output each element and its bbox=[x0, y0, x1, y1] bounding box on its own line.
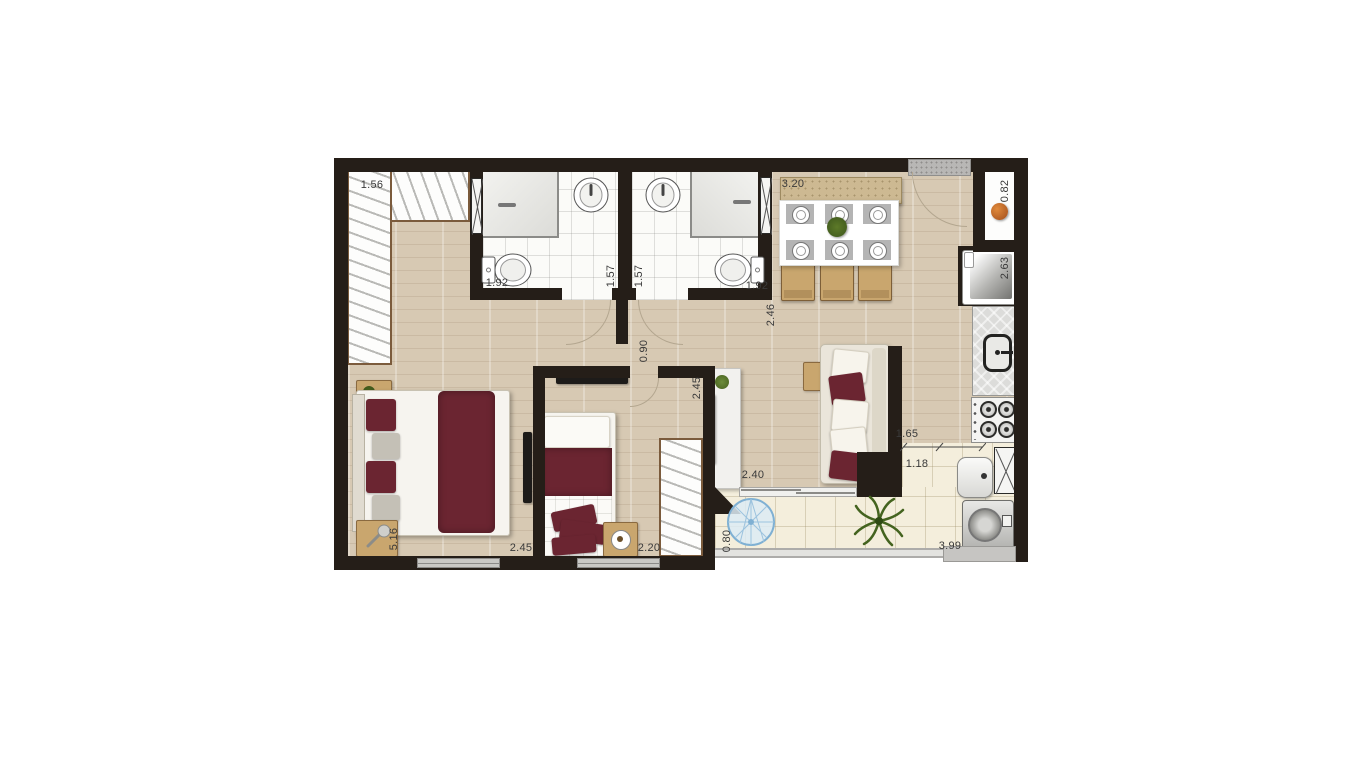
pillow-gray bbox=[372, 495, 400, 521]
pillow-single-bed bbox=[544, 416, 610, 448]
shower-stall-bath2 bbox=[690, 172, 758, 238]
dim-corridor-width: 0.90 bbox=[638, 340, 650, 363]
dim-balcony-length: 3.99 bbox=[939, 540, 962, 552]
table-centerpiece-plant-icon bbox=[827, 217, 847, 237]
dim-service-width: 1.18 bbox=[906, 458, 929, 470]
round-table-icon bbox=[726, 497, 776, 547]
master-bed-headboard bbox=[352, 394, 365, 532]
plate-icon bbox=[831, 242, 849, 260]
wall-niche-bottom bbox=[973, 240, 1028, 252]
water-heater bbox=[957, 457, 993, 498]
plate-icon bbox=[792, 242, 810, 260]
dining-chair bbox=[820, 263, 854, 301]
dim-niche-width: 0.82 bbox=[999, 180, 1011, 203]
pillow-gray bbox=[372, 433, 400, 459]
dim-living-width: 2.45 bbox=[691, 377, 703, 400]
wall-between-baths bbox=[618, 166, 632, 300]
niche-bowl-decor-icon bbox=[991, 203, 1008, 220]
shower-head-bath1-icon bbox=[498, 203, 516, 207]
wall-living-corner bbox=[857, 452, 902, 497]
wall-corridor-stub bbox=[616, 298, 628, 344]
faucet-icon bbox=[1001, 351, 1013, 354]
dim-bath1-length: 1.92 bbox=[486, 277, 509, 289]
closet-hanger-rail-left bbox=[347, 166, 392, 365]
tv-master-icon bbox=[523, 432, 532, 503]
duct-shaft bbox=[994, 447, 1016, 494]
sink-drain-dot bbox=[995, 350, 1000, 355]
dim-closet-width: 1.56 bbox=[361, 179, 384, 191]
wardrobe-bedroom2 bbox=[659, 438, 703, 557]
window-bedroom2 bbox=[577, 558, 660, 568]
dim-living-opening: 2.40 bbox=[742, 469, 765, 481]
wall-bedroom2-right bbox=[703, 366, 715, 557]
wall-left bbox=[334, 158, 348, 570]
duct-shaft-bath1 bbox=[471, 178, 482, 234]
window-master bbox=[417, 558, 500, 568]
dim-bath1-width: 1.57 bbox=[605, 265, 617, 288]
plate-icon bbox=[869, 206, 887, 224]
duct-shaft-bath2 bbox=[760, 177, 771, 234]
dim-master-length: 5.16 bbox=[388, 528, 400, 551]
washing-machine-panel bbox=[1002, 515, 1012, 527]
wall-bedroom2-top-a bbox=[533, 366, 630, 378]
stove-burner-icon bbox=[980, 401, 997, 418]
pillow-maroon bbox=[366, 461, 396, 493]
stove-burner-icon bbox=[980, 421, 997, 438]
stove-knobs bbox=[972, 400, 978, 440]
plate-icon bbox=[792, 206, 810, 224]
dim-bedroom2-width: 2.20 bbox=[638, 542, 661, 554]
dining-chair bbox=[858, 263, 892, 301]
dim-master-width: 2.45 bbox=[510, 542, 533, 554]
wall-niche-left bbox=[973, 158, 985, 252]
sliding-door-panel bbox=[796, 492, 855, 494]
dining-chair bbox=[781, 263, 815, 301]
shower-head-bath2-icon bbox=[733, 200, 751, 204]
sink-bath2-icon bbox=[643, 176, 683, 216]
dim-bath2-length: 1.92 bbox=[746, 280, 769, 292]
dim-dining-width: 3.20 bbox=[782, 178, 805, 190]
shower-stall-bath1 bbox=[483, 172, 559, 238]
lamp-center-dot bbox=[617, 536, 623, 542]
palm-plant-icon bbox=[850, 492, 908, 550]
rack-plant-icon bbox=[715, 375, 729, 389]
water-heater-valve-dot bbox=[981, 473, 987, 479]
refrigerator-handle bbox=[964, 252, 974, 268]
cushion-pile bbox=[551, 534, 596, 556]
dim-bath2-width: 1.57 bbox=[633, 265, 645, 288]
dimension-line-kitchen-passage bbox=[900, 441, 986, 453]
pillow-maroon bbox=[366, 399, 396, 431]
washing-machine-drum bbox=[968, 508, 1002, 542]
dim-hall-depth: 2.46 bbox=[765, 304, 777, 327]
dim-kitchen-passage: 1.65 bbox=[896, 428, 919, 440]
stove-burner-icon bbox=[998, 401, 1015, 418]
dim-balcony-depth: 0.80 bbox=[721, 530, 733, 553]
floor-plan-canvas: 1.56 1.92 1.57 1.57 1.92 3.20 0.82 2.63 … bbox=[0, 0, 1366, 768]
dim-kitchen-length: 2.63 bbox=[999, 257, 1011, 280]
master-bed-runner bbox=[438, 391, 495, 533]
stove-burner-icon bbox=[998, 421, 1015, 438]
sink-bath1-icon bbox=[571, 176, 611, 216]
wall-right bbox=[1014, 158, 1028, 562]
plate-icon bbox=[869, 242, 887, 260]
sliding-door-panel bbox=[741, 489, 801, 491]
single-bed-blanket bbox=[541, 448, 612, 496]
wall-master-bedroom2 bbox=[533, 366, 545, 557]
